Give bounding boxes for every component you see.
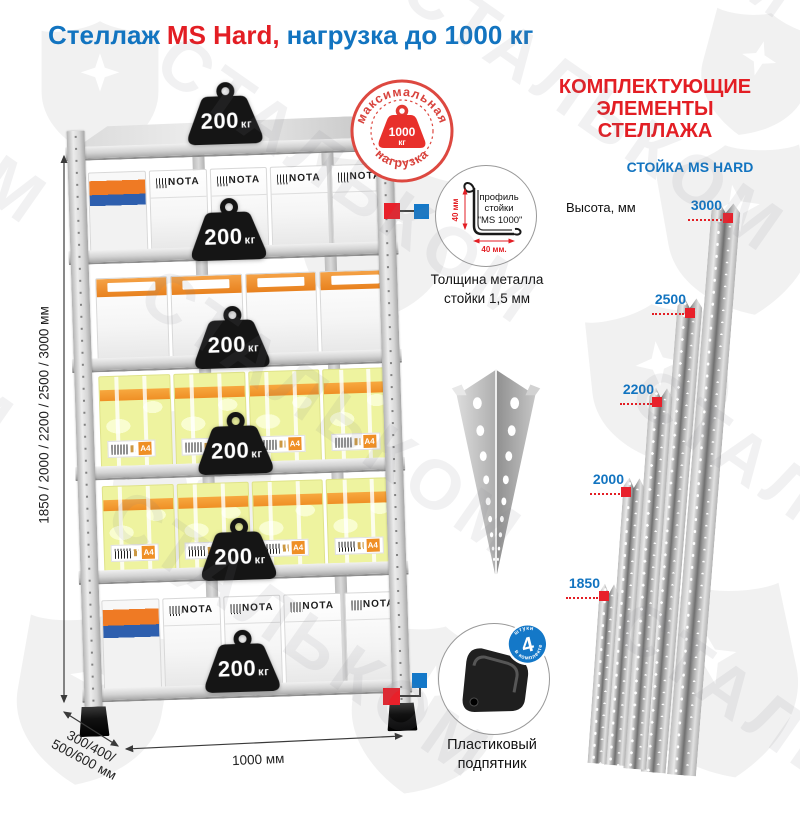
watermark-text: СТАЛЬКОМ (0, 0, 81, 9)
max-load-stamp: максимальная нагрузка 1000 кг (349, 78, 455, 184)
weight-unit: кг (258, 666, 269, 678)
foot-label-1: Пластиковый (402, 736, 582, 755)
profile-label-1: профиль (479, 192, 518, 203)
a4-label: A4 (291, 541, 304, 554)
title-part-1: Стеллаж (48, 20, 160, 50)
leader-3000 (688, 219, 722, 221)
barcode-icon (114, 548, 130, 558)
marker-2200 (652, 397, 662, 407)
weight-200kg-badge: 200кг (181, 81, 271, 148)
weight-unit: кг (248, 342, 259, 354)
paper-box: NOTA (283, 593, 343, 685)
barcode-icon (290, 602, 302, 612)
shelving-rack-illustration: NOTA NOTA NOTA NOTA A4 A4 A4 A4 A4 A4 A4… (50, 115, 421, 746)
leader-2500 (652, 313, 684, 315)
stamp-unit: кг (398, 138, 406, 147)
foot-label-2: подпятник (402, 755, 582, 774)
width-label: 1000 мм (232, 751, 285, 768)
barcode-icon (277, 174, 289, 184)
paper-box-orange-lid (95, 276, 169, 360)
leader-2200 (620, 403, 652, 405)
height-label-2000: 2000 (586, 471, 624, 487)
barcode-icon (169, 605, 181, 615)
leader-2000 (590, 493, 620, 495)
barcode-icon (111, 444, 127, 454)
weight-value: 200 (204, 224, 243, 250)
plastic-foot-label: Пластиковый подпятник (402, 736, 582, 774)
page-title: СтеллажMS Hard,нагрузка до 1000 кг (48, 20, 533, 51)
angle-post-3d-view (450, 356, 542, 578)
height-label-1850: 1850 (562, 575, 600, 591)
paper-pack-a4: A4 (102, 484, 176, 572)
barcode-icon (351, 600, 363, 610)
marker-2000 (621, 487, 631, 497)
paper-box: NOTA (270, 165, 330, 247)
weight-unit: кг (241, 118, 252, 130)
box-brand-label: NOTA (302, 600, 334, 612)
title-part-3: нагрузка до 1000 кг (287, 20, 534, 50)
callout-line-bottom-h (399, 695, 421, 697)
paper-box-promo (101, 598, 162, 690)
heading-line-1: КОМПЛЕКТУЮЩИЕ (540, 76, 770, 98)
box-brand-label: NOTA (181, 604, 213, 616)
weight-unit: кг (254, 554, 265, 566)
title-part-2: MS Hard, (167, 20, 280, 50)
a4-label: A4 (366, 539, 379, 552)
height-label-2200: 2200 (616, 381, 654, 397)
height-dimension-line (55, 146, 73, 712)
thickness-line-2: стойки 1,5 мм (397, 289, 577, 308)
barcode-icon (217, 176, 229, 186)
barcode-icon (335, 437, 351, 447)
weight-value: 200 (200, 108, 239, 134)
marker-3000 (723, 213, 733, 223)
profile-label-3: "MS 1000" (478, 215, 523, 226)
a4-label: A4 (142, 546, 155, 559)
stamp-value: 1000 (389, 125, 416, 139)
weight-unit: кг (251, 448, 262, 460)
callout-blue-marker-bottom (412, 673, 427, 688)
marker-2500 (685, 308, 695, 318)
components-heading: КОМПЛЕКТУЮЩИЕ ЭЛЕМЕНТЫ СТЕЛЛАЖА (540, 76, 770, 142)
weight-value: 200 (207, 332, 246, 358)
heading-line-2: ЭЛЕМЕНТЫ СТЕЛЛАЖА (540, 98, 770, 142)
weight-200kg-badge: 200кг (198, 629, 288, 696)
weight-200kg-badge: 200кг (191, 411, 281, 478)
height-label-2500: 2500 (648, 291, 686, 307)
callout-red-marker-top (384, 203, 400, 219)
callout-red-marker-bottom (383, 688, 400, 705)
paper-box-promo (88, 171, 148, 253)
weight-unit: кг (244, 234, 255, 246)
box-brand-label: NOTA (289, 172, 321, 184)
weight-value: 200 (214, 544, 253, 570)
profile-dim-horizontal: 40 мм. (481, 245, 506, 254)
marker-1850 (599, 591, 609, 601)
barcode-icon (156, 178, 168, 188)
profile-dim-vertical: 40 мм (451, 198, 460, 221)
weight-200kg-badge: 200кг (188, 305, 278, 372)
box-brand-label: NOTA (242, 602, 274, 614)
post-section-title: СТОЙКА MS HARD (600, 159, 780, 175)
weight-value: 200 (211, 438, 250, 464)
a4-label: A4 (288, 437, 301, 450)
height-label-3000: 3000 (684, 197, 722, 213)
height-options-label: 1850 / 2000 / 2200 / 2500 / 3000 мм (37, 306, 52, 523)
paper-pack-a4: A4 (98, 374, 173, 468)
leader-1850 (566, 597, 598, 599)
barcode-icon (338, 541, 354, 551)
barcode-icon (337, 172, 349, 182)
callout-blue-marker-top (414, 204, 429, 219)
a4-label: A4 (363, 435, 376, 448)
weight-value: 200 (217, 655, 256, 681)
height-axis-label: Высота, мм (566, 200, 636, 215)
a4-label: A4 (139, 442, 152, 455)
watermark-text: СТАЛЬКОМ (0, 141, 32, 463)
profile-label-2: стойки (484, 203, 513, 214)
weight-200kg-badge: 200кг (185, 197, 275, 264)
box-brand-label: NOTA (168, 176, 200, 188)
barcode-icon (230, 603, 242, 613)
thickness-note: Толщина металла стойки 1,5 мм (397, 270, 577, 308)
box-brand-label: NOTA (228, 174, 260, 186)
thickness-line-1: Толщина металла (397, 270, 577, 289)
weight-200kg-badge: 200кг (195, 517, 285, 584)
